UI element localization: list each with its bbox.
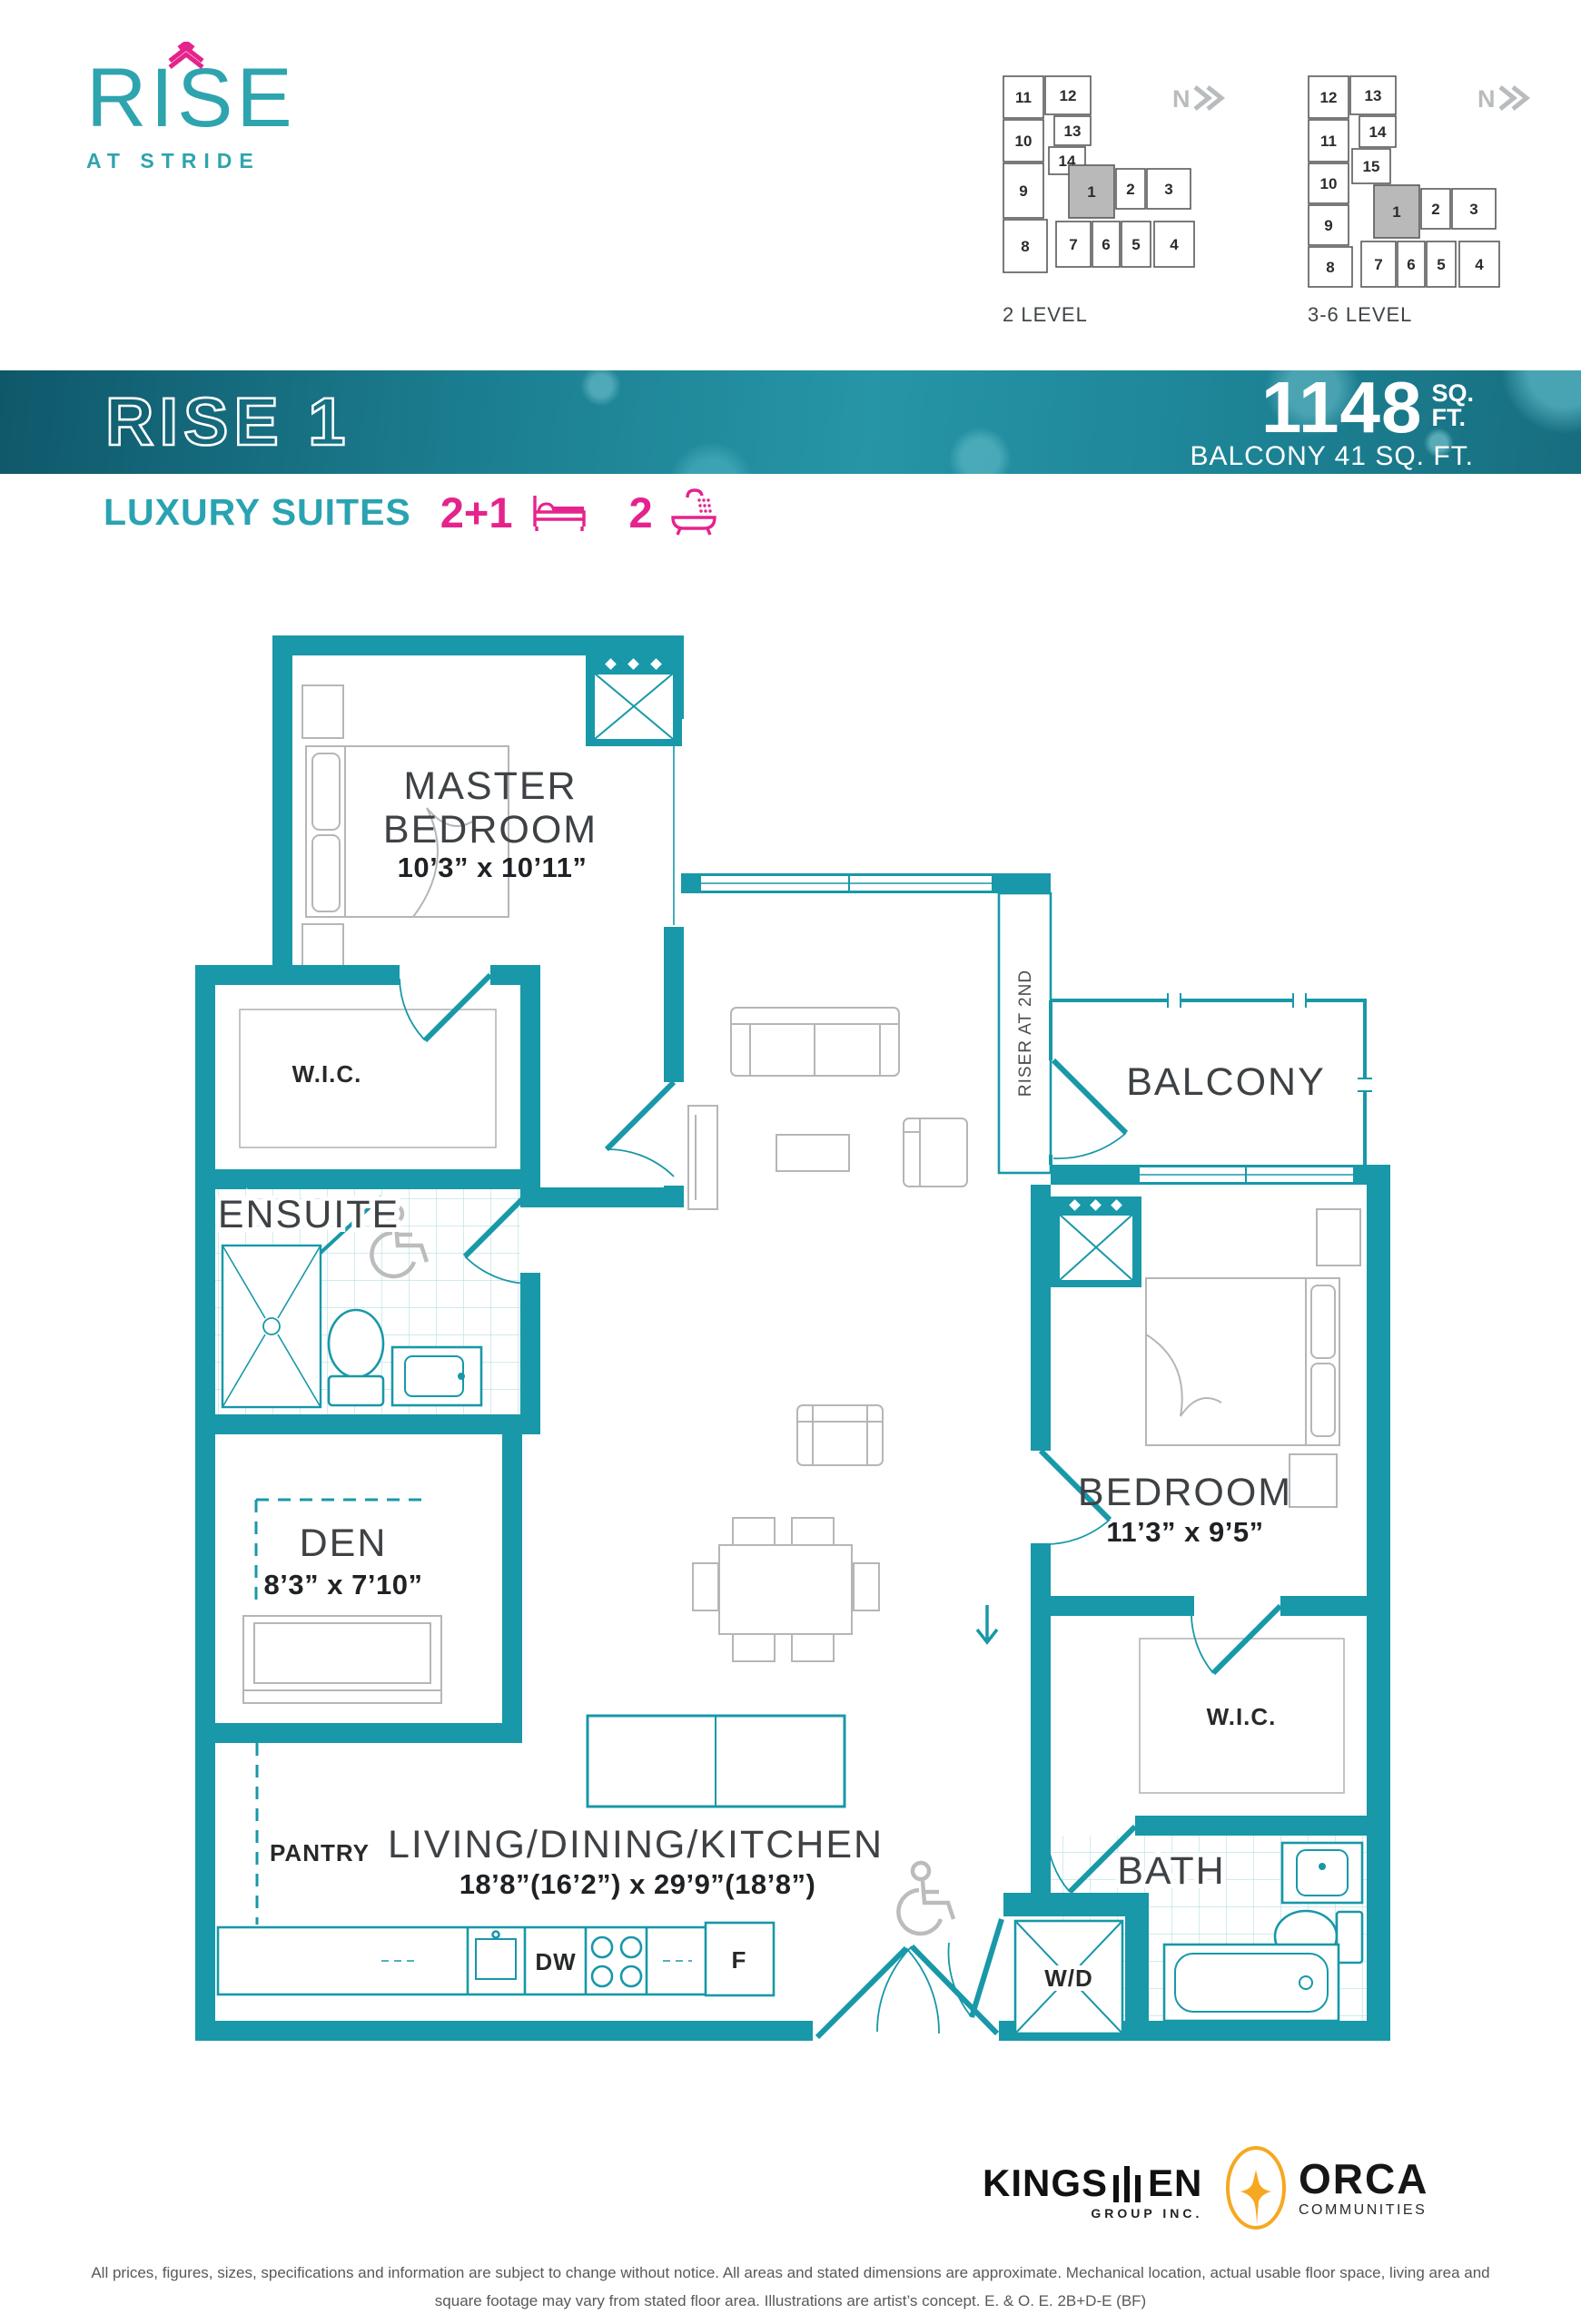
keyplan-unit-label: 7	[1069, 236, 1077, 253]
keyplan-unit-label: 10	[1015, 133, 1033, 150]
master-label-2: BEDROOM	[383, 808, 598, 852]
plan-title: RISE 1	[102, 378, 483, 473]
wic1-shelf	[240, 1009, 496, 1147]
nightstand	[302, 685, 343, 738]
keyplan-unit-label: 5	[1437, 256, 1445, 273]
bed-icon	[529, 492, 589, 532]
nightstand	[1317, 1209, 1360, 1265]
bed-count: 2+1	[440, 487, 513, 537]
ensuite-label: ENSUITE	[218, 1193, 400, 1236]
keyplan-unit-label: 11	[1320, 133, 1337, 150]
bedroom-bed	[1146, 1278, 1339, 1445]
master-dim: 10’3” x 10’11”	[398, 852, 588, 883]
den-desk	[243, 1616, 441, 1703]
keyplan-unit-label: 12	[1060, 87, 1077, 104]
rise-logo: RISE AT STRIDE	[86, 56, 359, 173]
wic1-label: W.I.C.	[292, 1060, 362, 1088]
master-label-1: MASTER	[403, 764, 577, 808]
riser-label: RISER AT 2ND	[1016, 970, 1035, 1097]
compass-chevrons-icon	[1500, 87, 1527, 109]
dining-set	[693, 1518, 879, 1661]
tv-console	[688, 1106, 717, 1209]
bedroom-closet	[1051, 1196, 1141, 1287]
entry-door	[817, 1948, 906, 2037]
armchair	[904, 1118, 967, 1187]
keyplan-2-level-cells: 1112101314912387654	[1003, 76, 1194, 272]
orca-subtitle: COMMUNITIES	[1299, 2202, 1428, 2219]
keyplan-unit-label: 3	[1164, 181, 1172, 198]
keyplan-unit-label: 8	[1021, 238, 1029, 255]
keyplan-unit-label: 3	[1469, 201, 1477, 218]
kingsmen-text-1: KINGS	[983, 2164, 1108, 2202]
pantry-label: PANTRY	[270, 1839, 370, 1866]
plan-area-block: 1148 SQ. FT. BALCONY 41 SQ. FT.	[1190, 376, 1474, 472]
keyplan-unit-label: 13	[1064, 123, 1082, 140]
balcony-label: BALCONY	[1126, 1060, 1326, 1104]
keyplan-3-6-level-cells: 121311141015912387654	[1309, 76, 1499, 287]
armchair	[797, 1405, 883, 1465]
floorplan-sheet: RISE AT STRIDE 1112101314912387654 N 2 L…	[0, 0, 1581, 2324]
kingsmen-subtitle: GROUP INC.	[983, 2206, 1202, 2221]
entry-door	[912, 1946, 997, 2033]
toilet	[329, 1310, 383, 1405]
orca-logo: ORCA COMMUNITIES	[1224, 2144, 1428, 2231]
sofa	[731, 1008, 899, 1076]
nightstand	[1290, 1454, 1337, 1507]
plan-title-text: RISE 1	[105, 384, 351, 459]
keyplan-unit-label: 7	[1374, 256, 1382, 273]
kingsmen-logo: KINGS EN GROUP INC.	[983, 2164, 1202, 2221]
balcony-area: BALCONY 41 SQ. FT.	[1190, 441, 1474, 472]
dishwasher-label: DW	[535, 1948, 576, 1975]
compass-chevrons-icon	[1195, 87, 1221, 109]
area-value: 1148	[1261, 376, 1423, 439]
area-unit-sq: SQ.	[1431, 381, 1474, 406]
keyplan-unit-label: 13	[1365, 87, 1382, 104]
living-label: LIVING/DINING/KITCHEN	[388, 1823, 884, 1866]
keyplan-unit-label: 8	[1326, 259, 1334, 276]
keyplan-unit-label: 11	[1015, 89, 1032, 106]
keyplan-unit-label: 6	[1102, 236, 1110, 253]
living-dim: 18’8”(16’2”) x 29’9”(18’8”)	[459, 1868, 816, 1900]
bath-count: 2	[629, 487, 653, 537]
floorplan-drawing: RISER AT 2ND	[0, 626, 1581, 2088]
keyplan-unit-label: 9	[1324, 217, 1332, 234]
disclaimer-line-2: square footage may vary from stated floo…	[0, 2287, 1581, 2315]
keyplan-unit-label: 4	[1475, 256, 1484, 273]
vanity-sink	[392, 1347, 481, 1405]
kingsmen-text-2: EN	[1148, 2164, 1202, 2202]
sink-faucet	[493, 1932, 499, 1938]
disclaimer: All prices, figures, sizes, specificatio…	[0, 2259, 1581, 2316]
wheelchair-icon	[898, 1863, 954, 1934]
suite-type-label: LUXURY SUITES	[104, 491, 411, 534]
bath-icon	[669, 487, 718, 537]
keyplan-2-level-label: 2 LEVEL	[1003, 303, 1088, 326]
bedroom-dim: 11’3” x 9’5”	[1106, 1516, 1263, 1548]
fridge-label: F	[732, 1946, 747, 1974]
orca-whale-tail-icon	[1224, 2144, 1288, 2231]
plan-banner: RISE 1 1148 SQ. FT. BALCONY 41 SQ. FT.	[0, 370, 1581, 474]
area-unit-ft: FT.	[1431, 406, 1474, 430]
suite-summary: LUXURY SUITES 2+1 2	[104, 487, 718, 537]
down-arrow-icon	[977, 1605, 997, 1642]
bath-label: BATH	[1117, 1849, 1226, 1893]
vanity-sink	[1282, 1843, 1362, 1903]
keyplan-3-6-level-label: 3-6 LEVEL	[1308, 303, 1412, 326]
master-closet	[586, 655, 682, 746]
washer-dryer-label: W/D	[1044, 1965, 1093, 1992]
keyplan-unit-label: 9	[1019, 182, 1027, 200]
keyplan-unit-label: 6	[1407, 256, 1415, 273]
keyplan-unit-label: 5	[1131, 236, 1140, 253]
keyplan-unit-label: 15	[1363, 158, 1380, 175]
den-dim: 8’3” x 7’10”	[264, 1569, 423, 1600]
kitchen-sink	[476, 1939, 516, 1979]
kingsmen-m-bars-icon	[1110, 2164, 1146, 2202]
compass-n-icon: N	[1172, 85, 1191, 113]
keyplan-unit-label: 12	[1320, 89, 1338, 106]
disclaimer-line-1: All prices, figures, sizes, specificatio…	[0, 2259, 1581, 2287]
keyplan-unit-label: 4	[1170, 236, 1179, 253]
wic2-label: W.I.C.	[1207, 1703, 1277, 1730]
keyplan-unit-label: 1	[1087, 183, 1095, 201]
keyplan-unit-label: 10	[1320, 175, 1338, 192]
keyplan-unit-label: 2	[1431, 201, 1439, 218]
rise-logo-word: RISE	[86, 56, 359, 140]
keyplan-unit-label: 14	[1369, 123, 1387, 141]
rise-logo-subtitle: AT STRIDE	[86, 149, 359, 173]
bedroom-label: BEDROOM	[1078, 1471, 1292, 1514]
riser-shaft: RISER AT 2ND	[999, 893, 1051, 1173]
keyplan-unit-label: 2	[1126, 181, 1134, 198]
keyplan-3-6-level: 121311141015912387654 N 3-6 LEVEL	[1257, 64, 1556, 336]
rise-chevron-icon	[166, 42, 206, 69]
orca-name: ORCA	[1299, 2158, 1428, 2200]
bathtub	[1164, 1945, 1339, 2021]
den-label: DEN	[300, 1521, 388, 1565]
keyplan-2-level: 1112101314912387654 N 2 LEVEL	[952, 64, 1251, 336]
keyplan-unit-label: 1	[1392, 203, 1400, 221]
compass-n-icon: N	[1477, 85, 1496, 113]
coffee-table	[776, 1135, 849, 1171]
